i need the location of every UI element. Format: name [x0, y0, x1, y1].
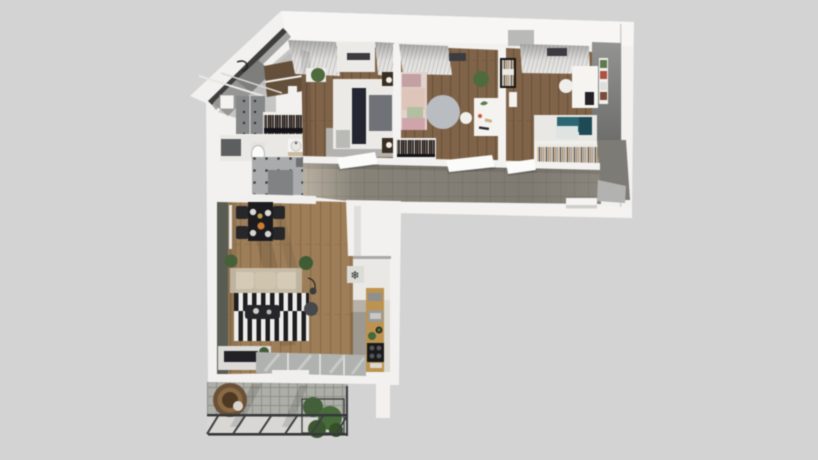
svg-text:❄: ❄: [350, 270, 359, 282]
